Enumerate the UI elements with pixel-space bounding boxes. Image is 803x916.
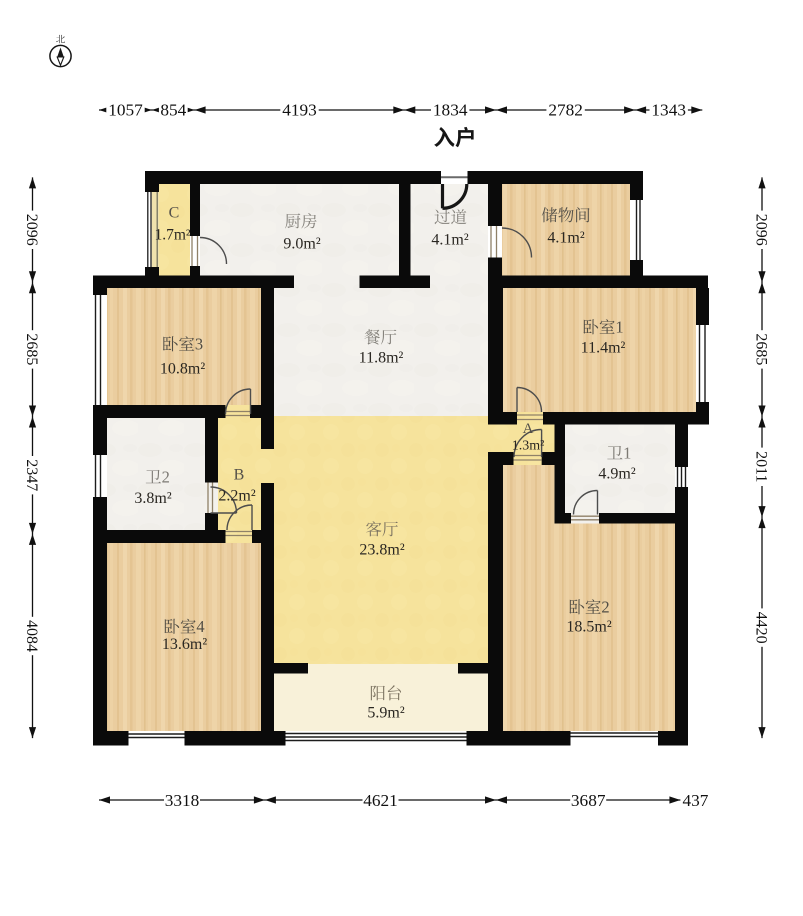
svg-text:18.5m²: 18.5m² <box>566 619 611 636</box>
svg-text:2685: 2685 <box>23 333 40 365</box>
svg-text:3318: 3318 <box>165 791 200 810</box>
svg-text:5.9m²: 5.9m² <box>367 705 404 722</box>
svg-text:4.1m²: 4.1m² <box>431 232 468 249</box>
svg-text:10.8m²: 10.8m² <box>160 361 205 378</box>
svg-text:4621: 4621 <box>363 791 398 810</box>
svg-text:2: 2 <box>162 468 170 487</box>
svg-text:1834: 1834 <box>433 101 468 120</box>
svg-text:A: A <box>523 421 534 437</box>
svg-text:2011: 2011 <box>753 451 770 482</box>
svg-text:854: 854 <box>160 101 186 120</box>
svg-text:3687: 3687 <box>571 791 606 810</box>
svg-text:9.0m²: 9.0m² <box>283 236 320 253</box>
svg-text:4420: 4420 <box>753 612 770 644</box>
svg-text:B: B <box>234 467 245 484</box>
svg-text:2096: 2096 <box>753 214 770 246</box>
svg-text:2347: 2347 <box>23 459 40 491</box>
svg-text:2685: 2685 <box>753 333 770 365</box>
svg-text:1343: 1343 <box>651 101 686 120</box>
svg-text:2782: 2782 <box>548 101 583 120</box>
svg-text:4084: 4084 <box>23 620 40 652</box>
svg-text:2.2m²: 2.2m² <box>218 488 255 505</box>
svg-text:4: 4 <box>196 617 204 636</box>
svg-text:1: 1 <box>623 444 631 463</box>
svg-text:2096: 2096 <box>23 214 40 246</box>
svg-text:1.3m²: 1.3m² <box>512 438 545 453</box>
svg-text:3: 3 <box>195 335 203 354</box>
svg-text:C: C <box>169 205 180 222</box>
svg-text:437: 437 <box>683 791 709 810</box>
svg-text:4.1m²: 4.1m² <box>547 230 584 247</box>
svg-text:11.4m²: 11.4m² <box>581 340 626 357</box>
svg-text:11.8m²: 11.8m² <box>359 350 404 367</box>
svg-text:4.9m²: 4.9m² <box>598 466 635 483</box>
svg-text:2: 2 <box>601 598 609 617</box>
svg-text:1: 1 <box>615 318 623 337</box>
svg-text:1057: 1057 <box>108 101 143 120</box>
svg-text:1.7m²: 1.7m² <box>154 226 190 243</box>
svg-text:23.8m²: 23.8m² <box>359 542 404 559</box>
svg-text:13.6m²: 13.6m² <box>162 636 207 653</box>
svg-text:3.8m²: 3.8m² <box>134 490 171 507</box>
svg-text:4193: 4193 <box>282 101 317 120</box>
